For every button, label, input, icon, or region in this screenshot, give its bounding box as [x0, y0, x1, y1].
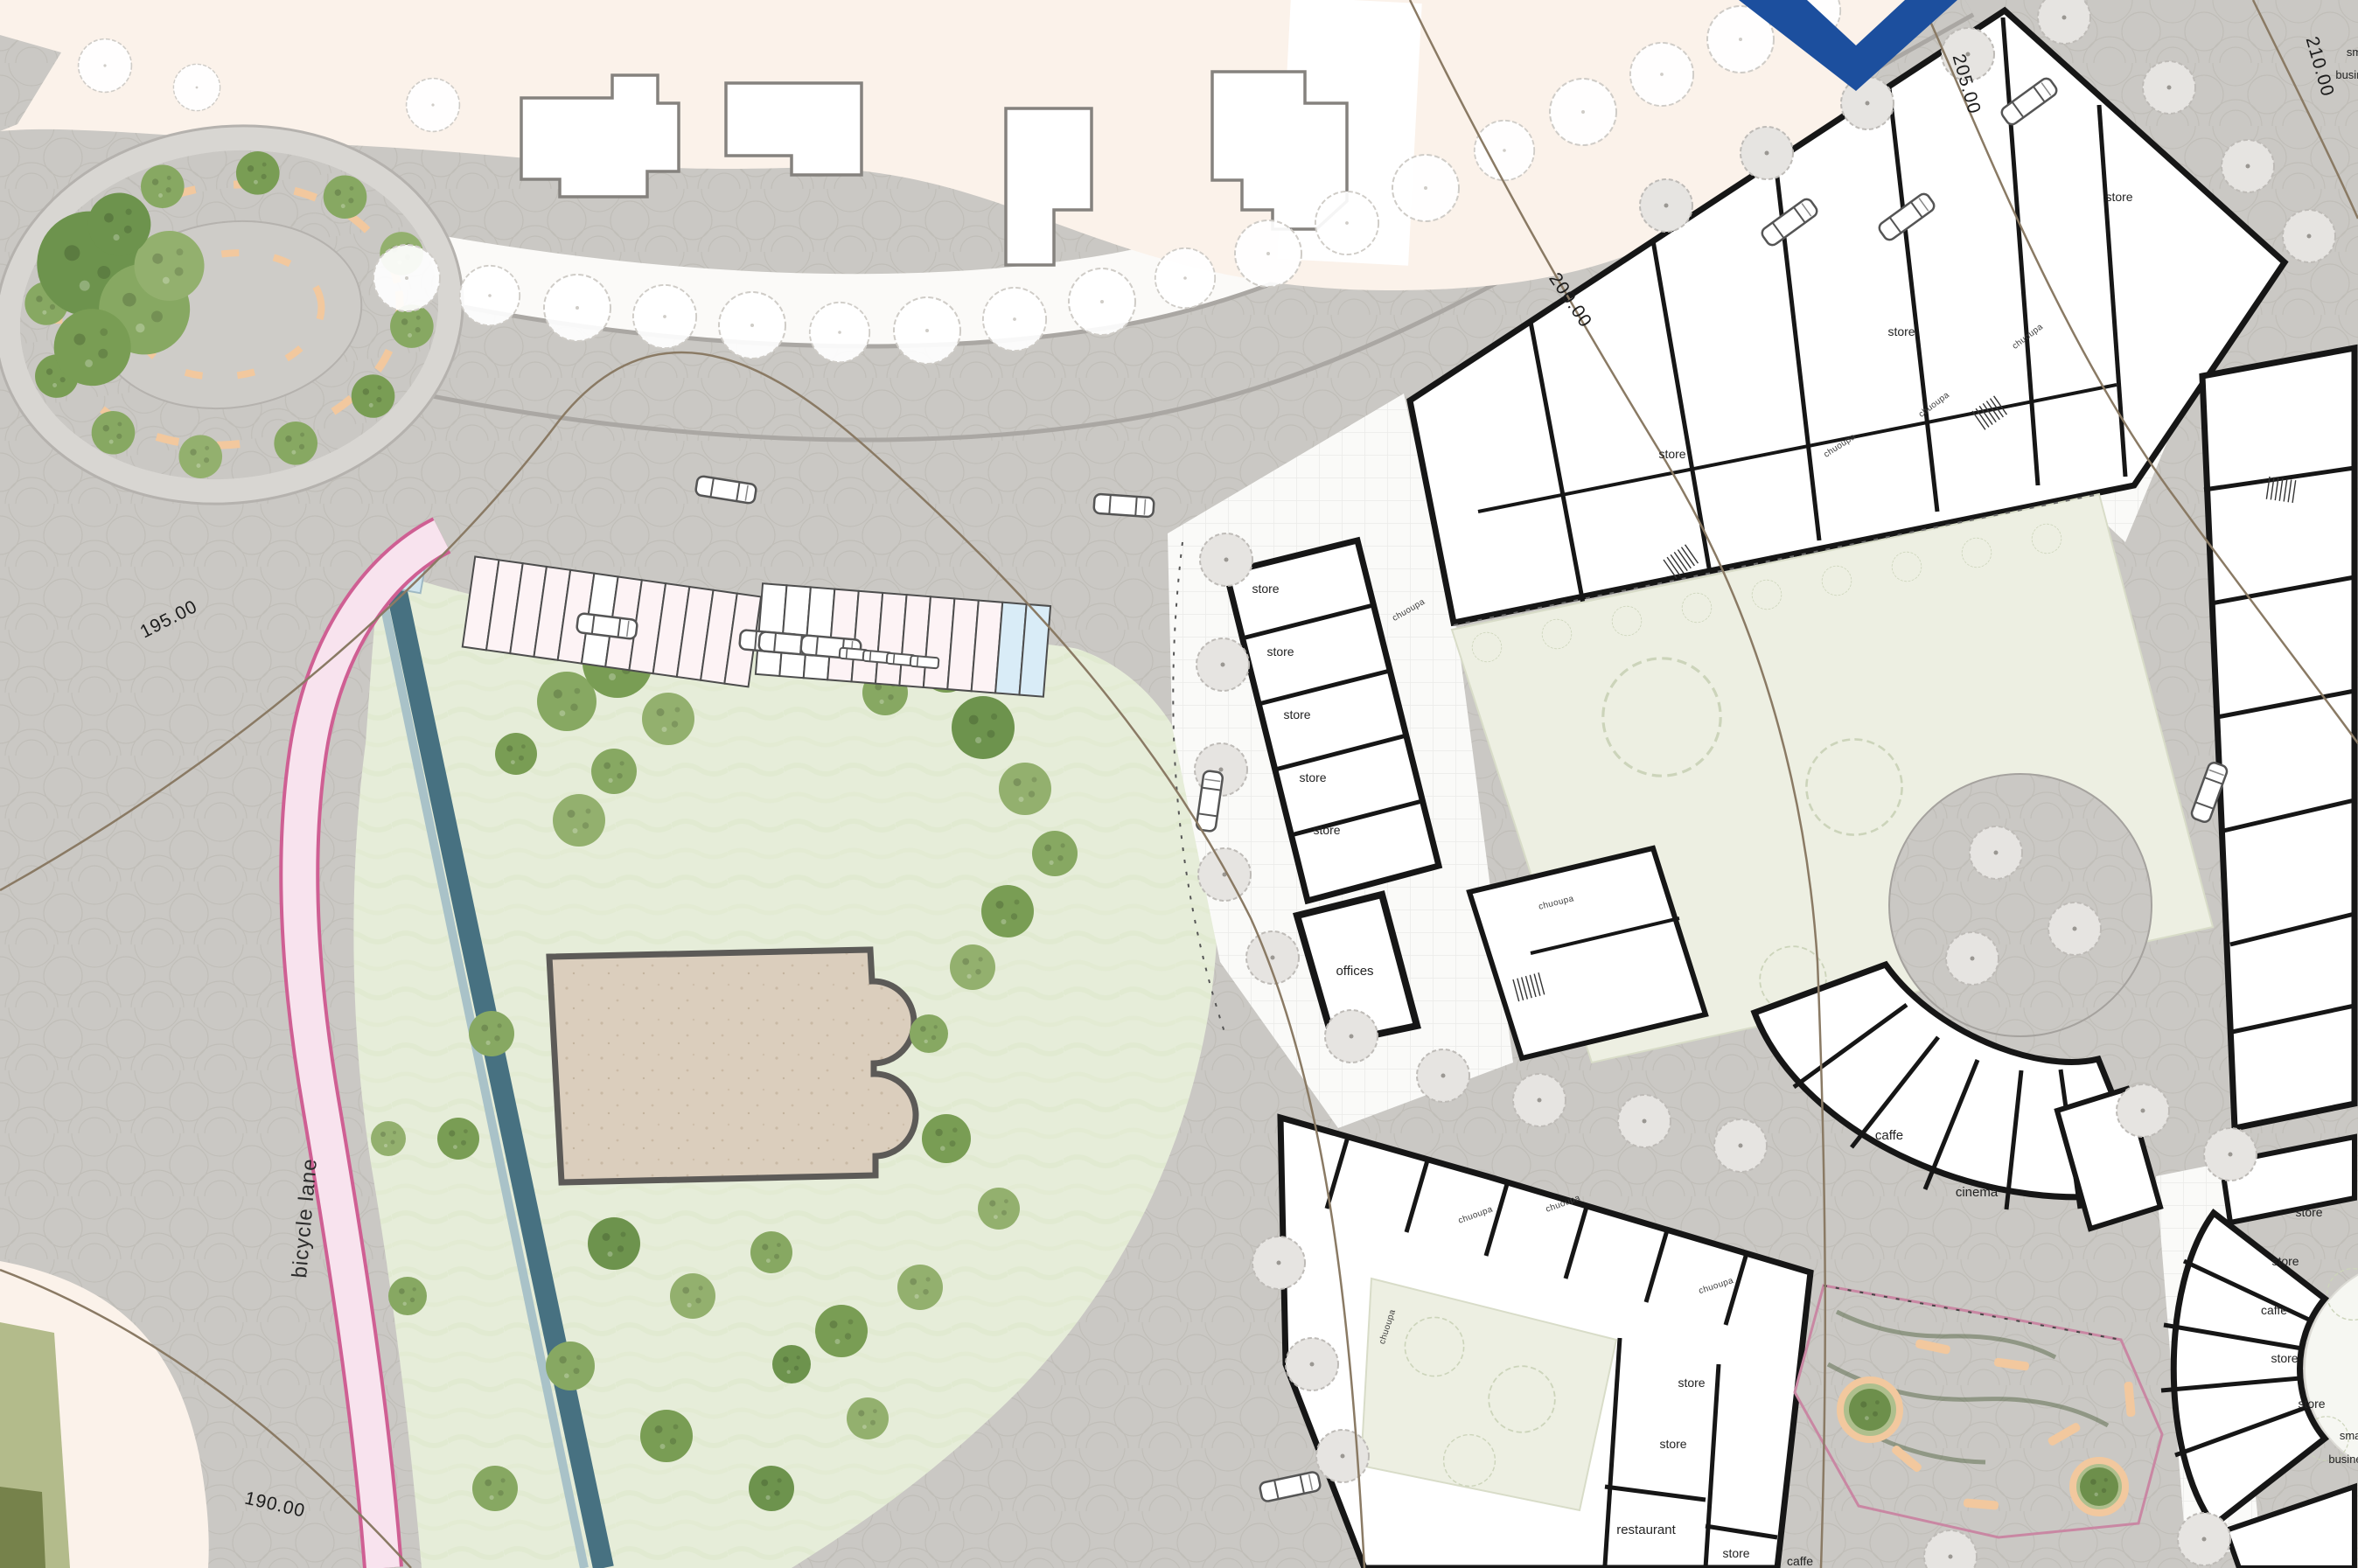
store-label: store	[1658, 447, 1685, 461]
offices-label: offices	[1336, 964, 1373, 979]
store-label: store	[1299, 770, 1326, 784]
restaurant-label: restaurant	[1616, 1523, 1676, 1537]
tree-planter	[2073, 1460, 2125, 1513]
store-label: store	[1678, 1376, 1705, 1390]
small-business-label: small	[2340, 1429, 2358, 1442]
caffe-label: caffe	[1787, 1554, 1813, 1568]
store-label: store	[1313, 823, 1340, 837]
site-plan-page: 190.00 195.00 200.00 205.00 210.00 bicyc…	[0, 0, 2358, 1568]
small-business-label: small	[2347, 45, 2358, 59]
circular-plaza	[1889, 774, 2152, 1036]
store-label: store	[1266, 645, 1294, 659]
store-label: store	[2295, 1205, 2322, 1219]
store-label: store	[2105, 190, 2132, 204]
store-label: store	[1722, 1546, 1749, 1560]
site-plan-map: 190.00 195.00 200.00 205.00 210.00 bicyc…	[0, 0, 2358, 1568]
small-business-label: business	[2328, 1453, 2358, 1466]
store-label: store	[1887, 324, 1915, 338]
store-label: store	[1283, 707, 1310, 721]
store-label: store	[2271, 1254, 2299, 1268]
green-plot	[0, 1487, 45, 1568]
store-label: store	[2298, 1397, 2325, 1411]
store-label: store	[1252, 582, 1279, 596]
tree-planter	[1840, 1380, 1900, 1439]
small-business-label: business	[2335, 68, 2358, 81]
caffe-label: caffe	[1875, 1128, 1903, 1143]
store-label: store	[1659, 1437, 1686, 1451]
caffe-label: caffe	[2261, 1303, 2287, 1317]
cinema-label: cinema	[1956, 1185, 1999, 1200]
store-label: store	[2271, 1351, 2298, 1365]
event-pad	[549, 950, 916, 1182]
